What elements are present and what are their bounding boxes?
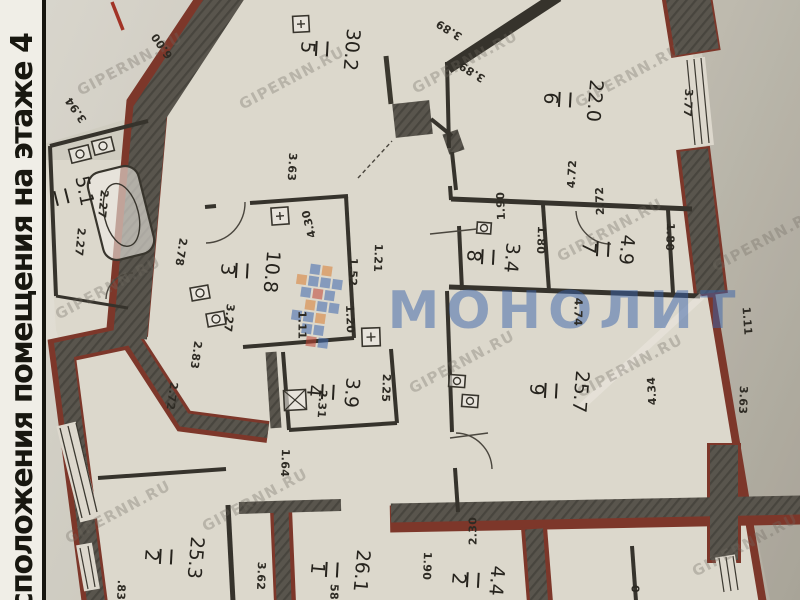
room-area: 30.2 bbox=[339, 28, 365, 72]
room-number: 1 bbox=[306, 561, 329, 575]
dimension-label: 1.21 bbox=[371, 244, 385, 273]
room-area: 4.9 bbox=[614, 234, 639, 266]
dimension-label: 3.62 bbox=[254, 562, 268, 591]
dimension-label: 2.25 bbox=[379, 374, 393, 403]
room-label: 925.7 bbox=[530, 378, 602, 404]
dimension-label: 2.30 bbox=[467, 517, 480, 545]
sink-icon bbox=[477, 222, 492, 234]
room-number: 9 bbox=[525, 382, 548, 396]
room-area: 22.0 bbox=[582, 79, 608, 123]
floorplan-scan: GIPERNN.RU GIPERNN.RU GIPERNN.RU GIPERNN… bbox=[0, 0, 800, 600]
room-area: 10.8 bbox=[259, 250, 285, 294]
dimension-label: 0 bbox=[629, 585, 642, 593]
stove-icon bbox=[362, 328, 381, 347]
room-area: 3.4 bbox=[499, 242, 524, 274]
dimension-label: 3.63 bbox=[285, 153, 299, 182]
room-number: 2 bbox=[140, 548, 163, 562]
dimension-label: 2.72 bbox=[593, 187, 607, 216]
dimension-label: 4.72 bbox=[565, 160, 579, 189]
plan-caption: сположения помещения на этаже 4 bbox=[5, 34, 40, 600]
dimension-label: 1.11 bbox=[296, 311, 309, 339]
sink-icon bbox=[462, 394, 479, 407]
room-label: 622.0 bbox=[544, 87, 616, 113]
dimension-label: 3.63 bbox=[736, 386, 750, 415]
room-area: 25.3 bbox=[183, 536, 209, 580]
room-number: 6 bbox=[539, 91, 562, 105]
toilet-icon bbox=[190, 285, 210, 301]
dimension-label: 3.77 bbox=[681, 89, 695, 118]
dimension-label: 1.90 bbox=[494, 192, 508, 221]
room-label: 43.9 bbox=[307, 379, 367, 404]
dimension-label: 1.80 bbox=[663, 223, 677, 252]
room-label: 74.9 bbox=[582, 236, 642, 261]
dimension-label: 1.20 bbox=[343, 305, 357, 334]
room-label: 530.2 bbox=[301, 36, 373, 62]
dimension-label: 1.11 bbox=[740, 306, 755, 335]
room-label: 83.4 bbox=[467, 244, 527, 269]
room-label: 225.3 bbox=[145, 544, 217, 570]
dimension-label: 1.80 bbox=[534, 226, 548, 255]
room-area: 25.7 bbox=[568, 370, 594, 414]
dimension-label: 1.90 bbox=[420, 552, 434, 581]
room-number: 2 bbox=[447, 572, 470, 586]
room-number: 3 bbox=[216, 262, 239, 276]
monolit-watermark: МОНОЛИТ bbox=[388, 281, 743, 341]
room-area: 3.9 bbox=[339, 377, 364, 409]
room-number: 8 bbox=[462, 249, 485, 263]
dimension-label: 1.52 bbox=[346, 258, 360, 287]
stove-icon bbox=[293, 16, 310, 33]
room-label: 310.8 bbox=[221, 258, 293, 284]
margin-divider-line bbox=[42, 0, 46, 600]
dimension-label: 58 bbox=[327, 584, 341, 600]
stove-icon bbox=[271, 207, 289, 225]
room-number: 7 bbox=[577, 241, 600, 255]
room-area: 26.1 bbox=[349, 549, 375, 593]
room-area: 5.1 bbox=[70, 174, 98, 208]
room-label: 126.1 bbox=[311, 557, 383, 583]
room-number: 4 bbox=[302, 384, 325, 398]
dimension-label: .83 bbox=[114, 580, 128, 600]
dimension-label: 1.64 bbox=[278, 449, 292, 478]
dimension-label: 4.34 bbox=[645, 377, 659, 406]
room-label: 24.4 bbox=[452, 567, 512, 592]
equals-mark-icon bbox=[53, 188, 69, 206]
dimension-label: 4.74 bbox=[571, 298, 584, 327]
room-number: 5 bbox=[296, 40, 319, 54]
room-area: 4.4 bbox=[484, 565, 509, 597]
